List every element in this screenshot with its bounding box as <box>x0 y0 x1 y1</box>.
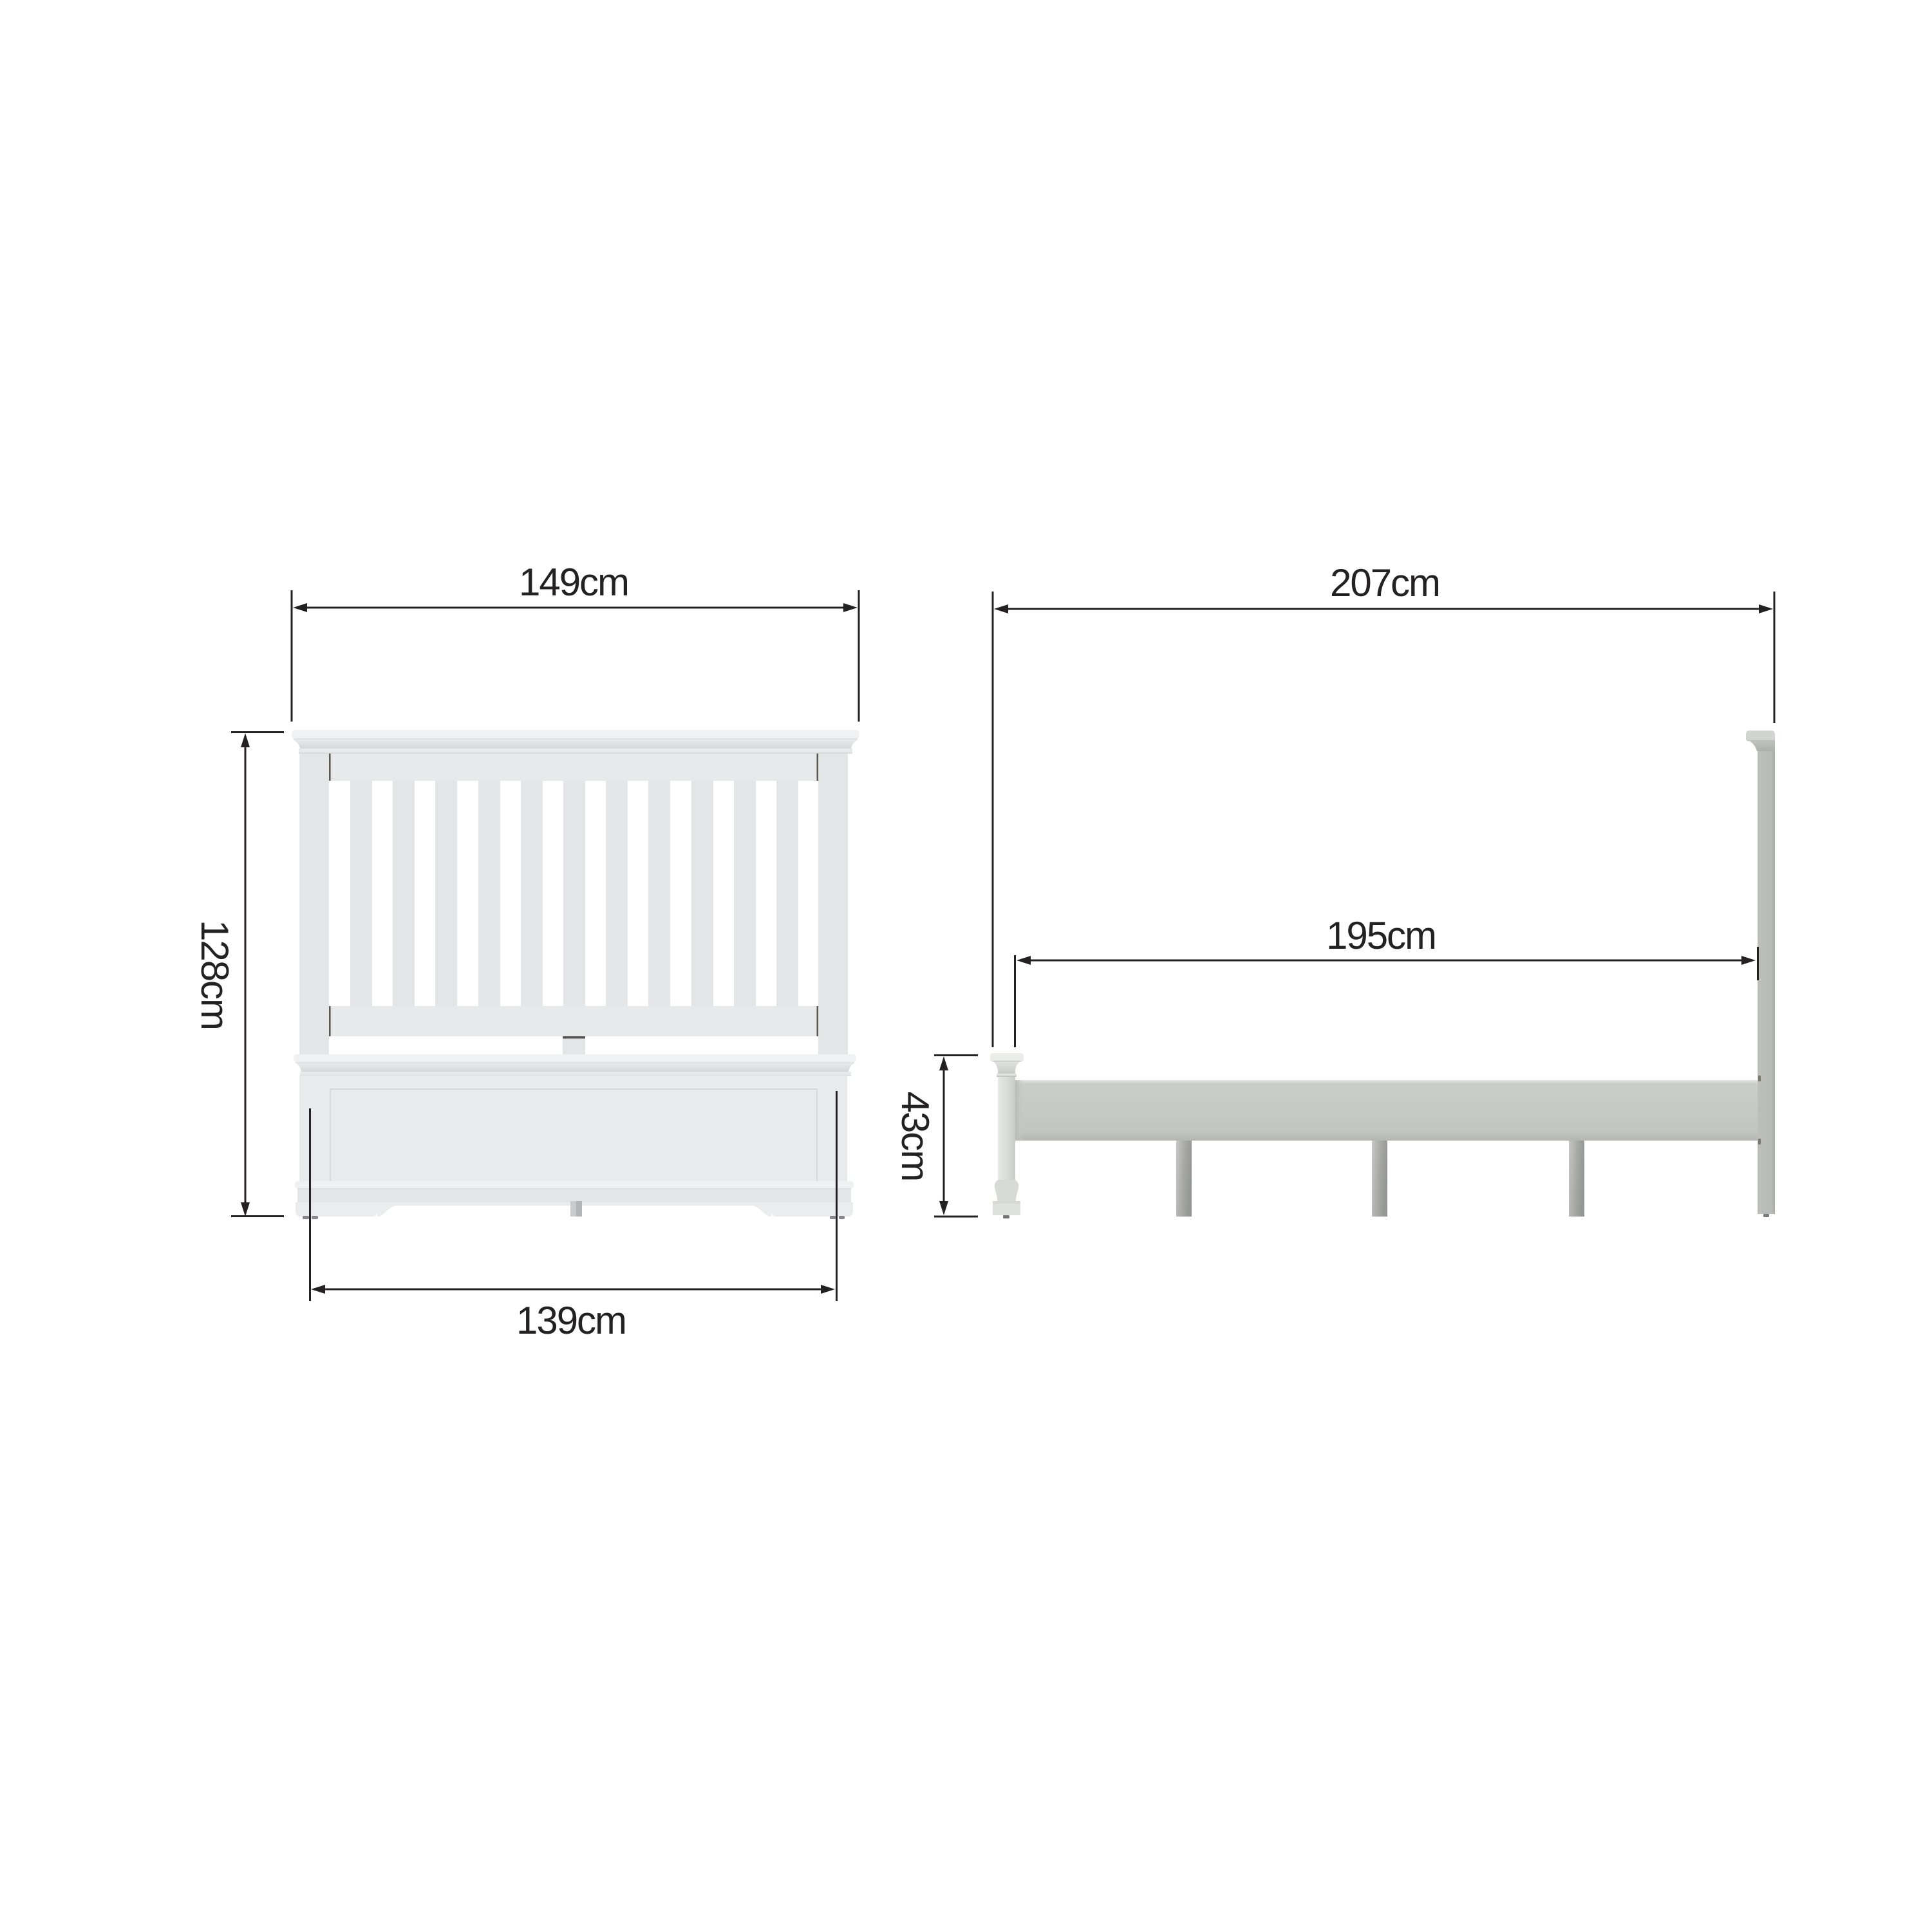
svg-text:149cm: 149cm <box>519 561 628 604</box>
svg-text:139cm: 139cm <box>516 1299 626 1342</box>
svg-text:43cm: 43cm <box>894 1092 937 1181</box>
svg-text:128cm: 128cm <box>193 920 236 1029</box>
svg-text:207cm: 207cm <box>1330 561 1440 604</box>
svg-text:195cm: 195cm <box>1326 914 1436 957</box>
